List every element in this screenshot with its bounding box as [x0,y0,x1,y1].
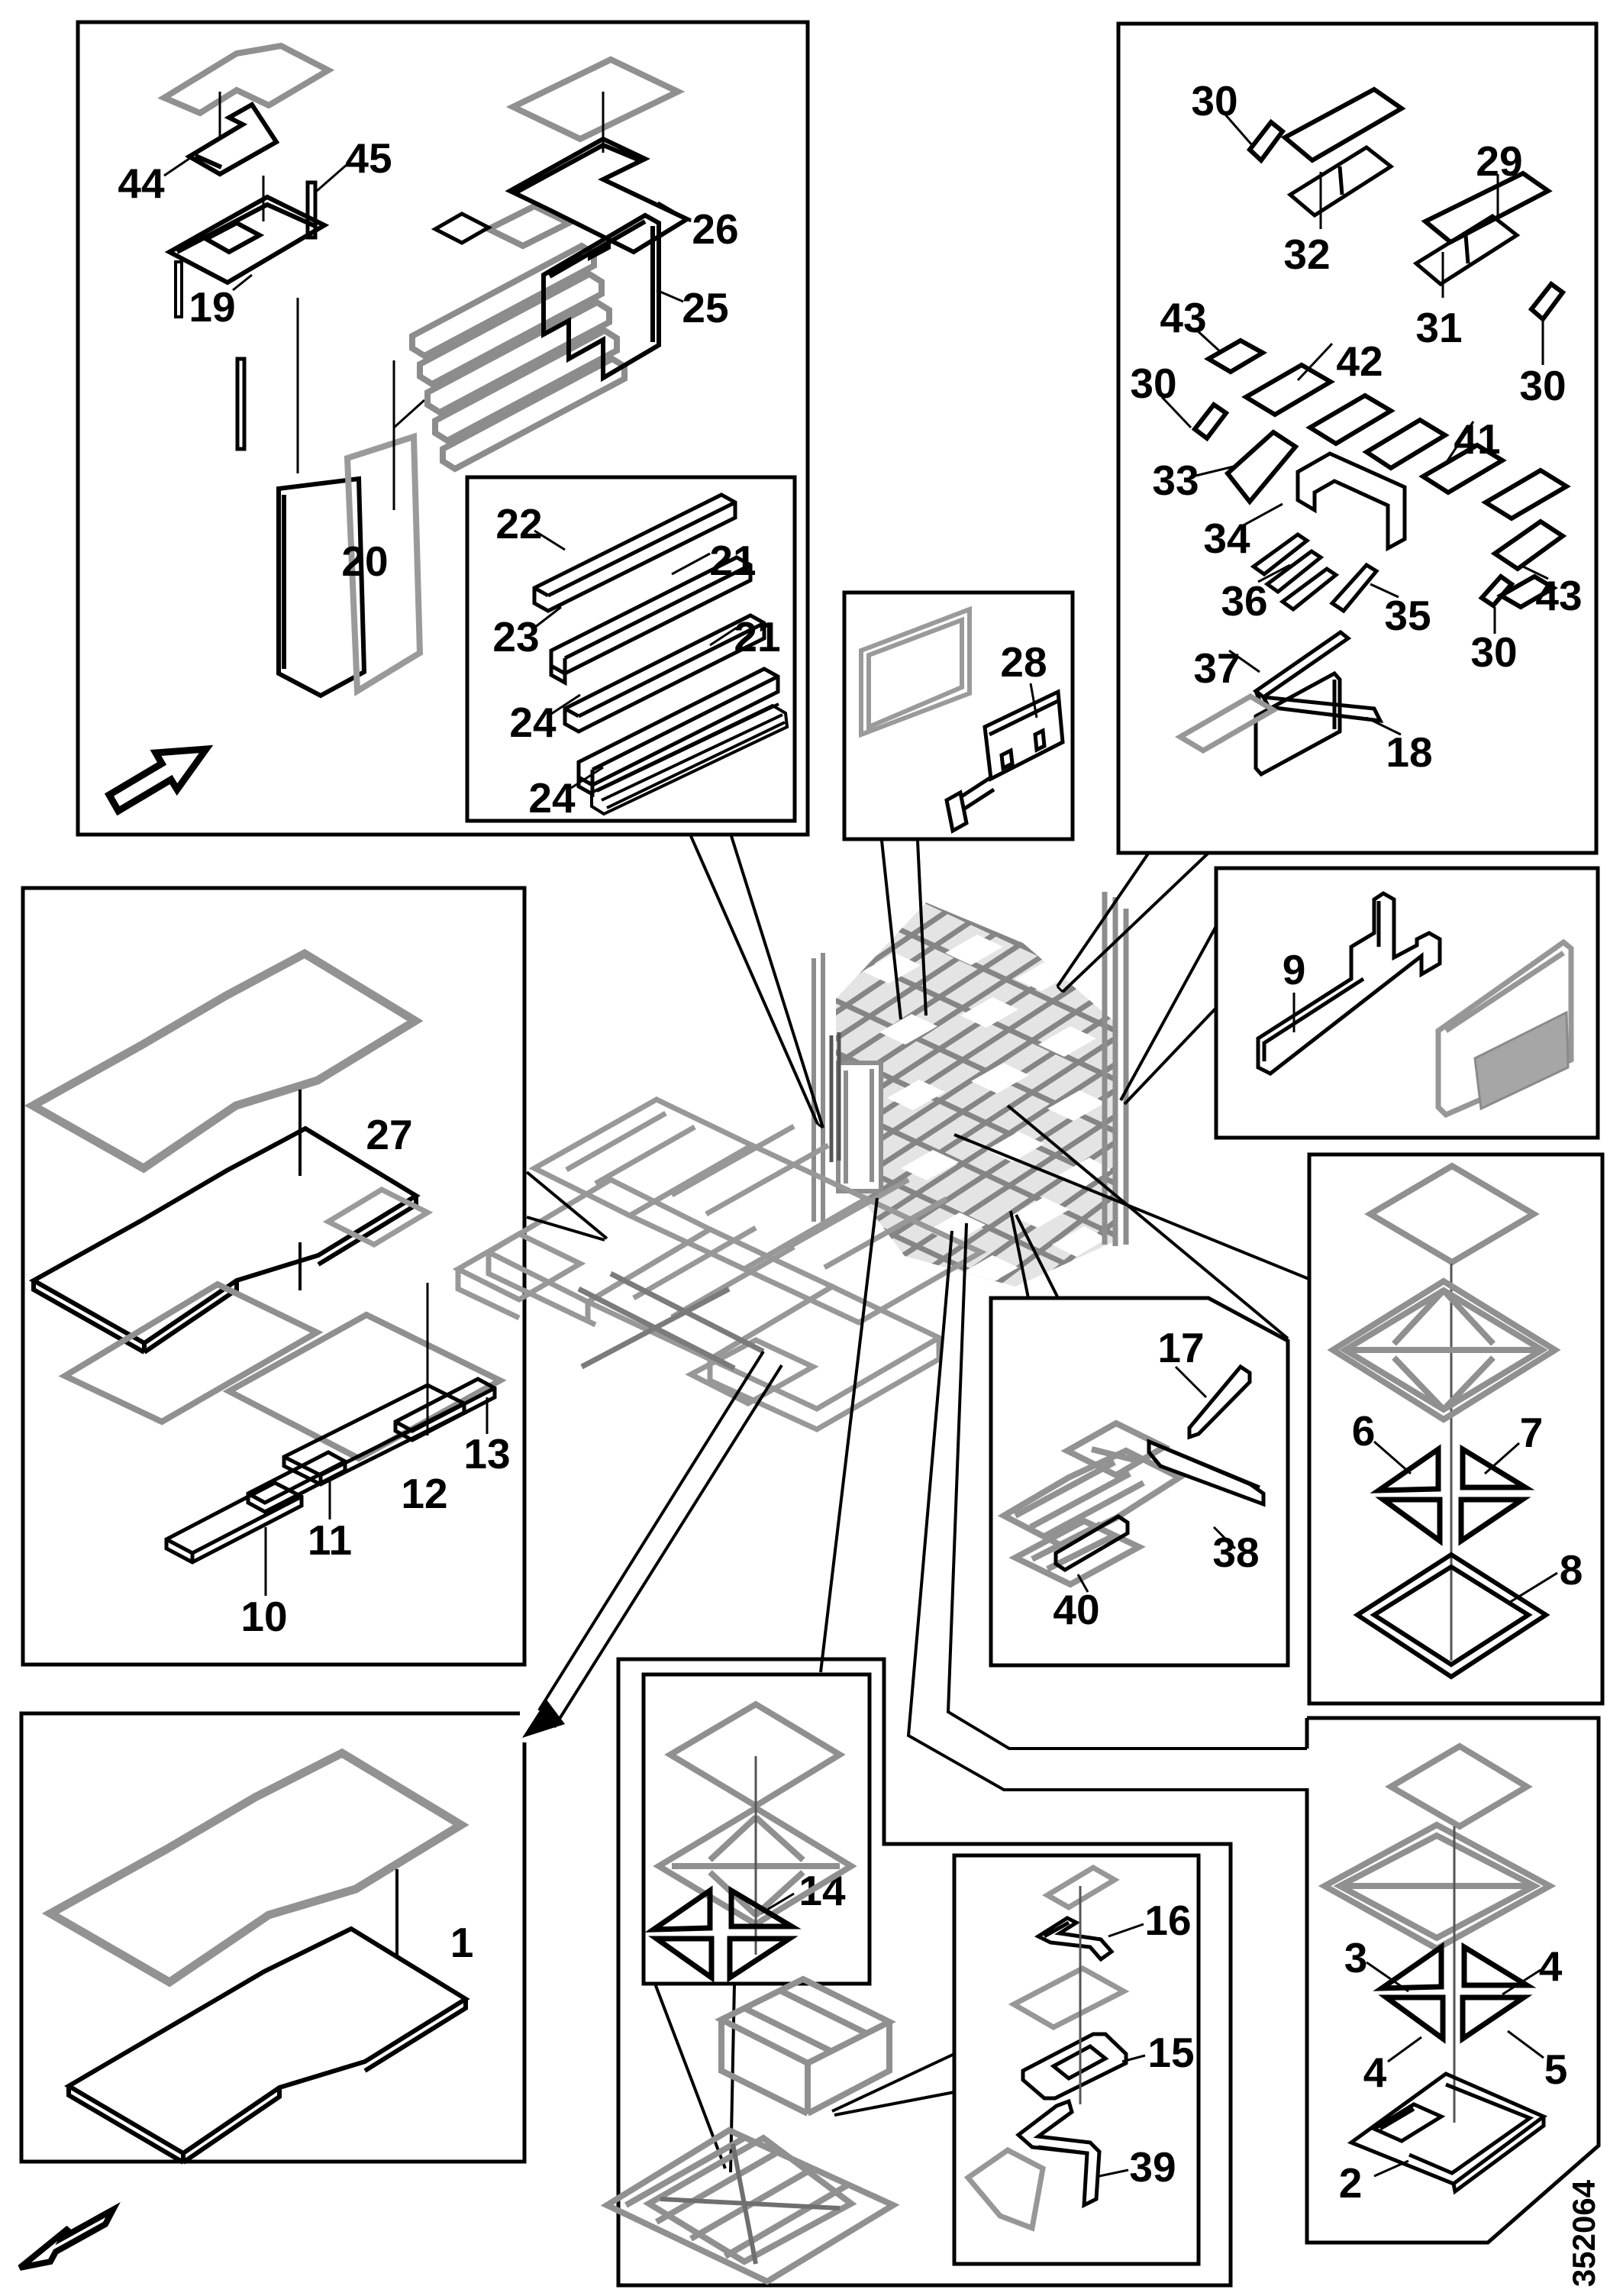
svg-text:15: 15 [1147,2029,1194,2076]
svg-text:33: 33 [1152,457,1199,504]
svg-text:38: 38 [1212,1529,1259,1576]
svg-text:17: 17 [1157,1324,1204,1371]
svg-text:30: 30 [1470,628,1517,676]
svg-text:28: 28 [1000,638,1047,686]
svg-text:11: 11 [308,1516,352,1564]
svg-text:36: 36 [1221,577,1267,625]
svg-text:9: 9 [1283,946,1306,993]
svg-text:35: 35 [1384,592,1431,639]
svg-text:24: 24 [509,699,557,746]
svg-text:4: 4 [1539,1942,1563,1990]
svg-text:32: 32 [1283,231,1330,278]
svg-text:37: 37 [1193,644,1240,692]
svg-text:27: 27 [366,1111,412,1158]
svg-text:25: 25 [682,284,728,331]
svg-text:26: 26 [692,205,738,253]
svg-text:21: 21 [709,537,756,584]
svg-text:34: 34 [1203,515,1250,562]
svg-text:29: 29 [1476,137,1522,185]
svg-text:30: 30 [1130,360,1176,407]
svg-text:5: 5 [1544,2046,1568,2093]
svg-text:13: 13 [463,1430,510,1477]
svg-text:2: 2 [1339,2159,1363,2207]
svg-text:1: 1 [450,1919,474,1966]
svg-text:12: 12 [401,1470,447,1517]
svg-text:7: 7 [1520,1409,1544,1456]
svg-text:22: 22 [495,500,542,547]
svg-text:4: 4 [1363,2049,1387,2096]
svg-text:44: 44 [118,160,165,207]
svg-text:19: 19 [189,283,235,331]
svg-text:23: 23 [492,613,539,660]
svg-text:3: 3 [1344,1934,1368,1981]
svg-text:24: 24 [528,774,576,822]
svg-text:40: 40 [1053,1586,1099,1633]
svg-text:39: 39 [1129,2143,1176,2191]
svg-text:10: 10 [240,1593,287,1640]
svg-text:20: 20 [341,538,388,585]
svg-text:18: 18 [1386,728,1432,776]
svg-text:30: 30 [1191,77,1237,124]
svg-text:43: 43 [1535,572,1582,619]
svg-text:352064: 352064 [1566,2179,1602,2287]
svg-text:16: 16 [1144,1897,1191,1944]
svg-text:21: 21 [734,613,780,660]
svg-text:30: 30 [1519,362,1566,409]
svg-text:45: 45 [345,134,392,182]
svg-text:42: 42 [1336,337,1383,385]
svg-text:8: 8 [1560,1546,1583,1594]
svg-text:6: 6 [1352,1407,1376,1455]
svg-text:31: 31 [1415,304,1462,351]
svg-text:43: 43 [1160,294,1206,341]
svg-text:41: 41 [1454,415,1500,463]
